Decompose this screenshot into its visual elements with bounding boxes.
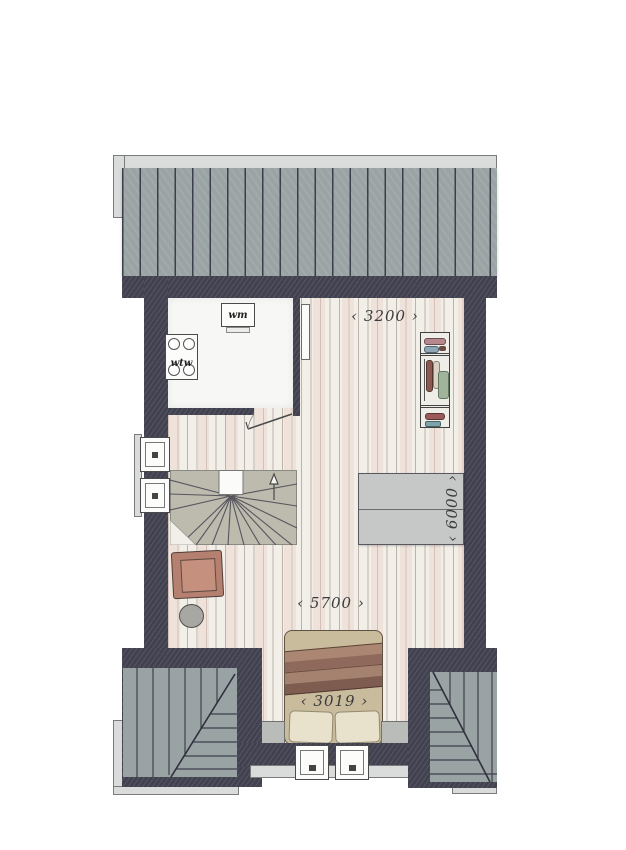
hanging-rail [424, 359, 425, 401]
dimension-middle: ‹ 5700 › [286, 593, 376, 613]
radiator-icon [301, 304, 310, 360]
wtw-fan-icon [168, 338, 180, 350]
wardrobe-shelf [421, 353, 449, 356]
gutter-icon [113, 786, 239, 795]
knee-wall [261, 721, 285, 745]
exterior-wall [238, 743, 430, 767]
exterior-wall [464, 276, 486, 672]
double-bed-icon: ‹ 3019 › [284, 630, 383, 745]
wtw-label: wtw [171, 358, 193, 369]
hanging-clothes-icon [438, 371, 449, 399]
interior-wall [168, 408, 254, 415]
knee-wall [381, 721, 409, 745]
wardrobe-shelf [421, 405, 449, 408]
roof-icon [122, 168, 497, 276]
wardrobe-item [439, 346, 446, 351]
wardrobe-item [424, 346, 439, 353]
armchair-icon [171, 550, 224, 600]
window-icon [295, 745, 329, 780]
window-icon [335, 745, 369, 780]
gutter-icon [113, 155, 497, 169]
blanket-icon [284, 642, 383, 698]
wardrobe-icon [420, 332, 450, 428]
window-sill [250, 765, 418, 778]
stair-landing [219, 471, 243, 495]
window-icon [140, 478, 170, 513]
hanging-clothes-icon [426, 360, 433, 392]
hip-roof-left [123, 668, 237, 777]
wtw-unit-icon: wtw [165, 334, 198, 380]
floor-plan: wm wtw [0, 0, 626, 850]
dimension-right: ‹ 6000 › [442, 472, 462, 544]
wardrobe-item [424, 338, 446, 345]
side-table-icon [179, 604, 204, 628]
wardrobe-item [425, 421, 441, 427]
washing-machine-icon: wm [221, 303, 255, 327]
dimension-top: ‹ 3200 › [340, 306, 430, 326]
dimension-bed: ‹ 3019 › [285, 691, 383, 711]
interior-wall [293, 298, 300, 416]
hip-roof-right [430, 672, 497, 782]
wardrobe-item [425, 413, 445, 420]
pillow-icon [334, 710, 380, 744]
stairs-icon [170, 470, 297, 545]
pillow-icon [288, 710, 333, 744]
wtw-fan-icon [183, 338, 195, 350]
window-icon [140, 437, 170, 472]
exterior-wall [122, 276, 497, 298]
washing-machine-tray [226, 327, 250, 333]
washing-machine-label: wm [228, 310, 247, 321]
